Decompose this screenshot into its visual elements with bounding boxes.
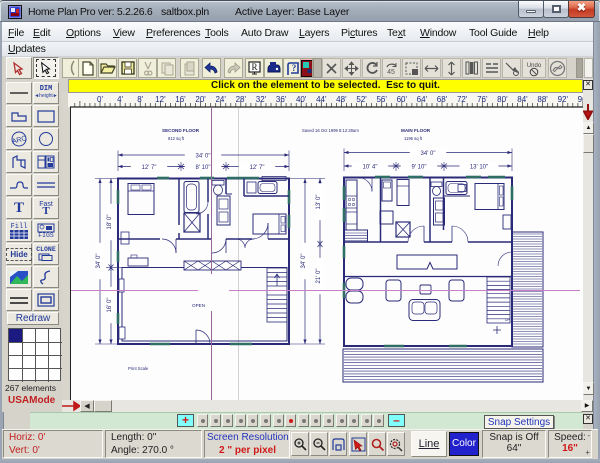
svg-text:12' 7": 12' 7" (250, 165, 265, 171)
svg-text:12': 12' (155, 95, 166, 104)
svg-text:34' 0": 34' 0" (421, 151, 436, 157)
svg-text:MAIN FLOOR: MAIN FLOOR (401, 128, 431, 133)
svg-text:52': 52' (356, 95, 367, 104)
svg-text:44': 44' (316, 95, 327, 104)
svg-text:76': 76' (477, 95, 488, 104)
svg-text:48': 48' (336, 95, 347, 104)
svg-text:68': 68' (437, 95, 448, 104)
svg-text:80': 80' (497, 95, 508, 104)
svg-text:UP: UP (505, 318, 511, 322)
svg-text:0': 0' (97, 95, 103, 104)
svg-text:13' 10": 13' 10" (470, 164, 488, 170)
svg-text:R: R (251, 62, 257, 72)
svg-text:OPEN: OPEN (192, 303, 205, 308)
svg-text:1196 sq ft: 1196 sq ft (404, 136, 423, 141)
svg-text:92': 92' (558, 95, 569, 104)
svg-text:?: ? (291, 63, 296, 73)
svg-text:4': 4' (117, 95, 123, 104)
svg-text:9' 10": 9' 10" (412, 164, 427, 170)
svg-text:21' 0": 21' 0" (316, 269, 322, 284)
svg-text:64': 64' (417, 95, 428, 104)
svg-text:32': 32' (256, 95, 267, 104)
svg-text:28': 28' (236, 95, 247, 104)
svg-text:45: 45 (387, 69, 395, 76)
svg-text:88': 88' (537, 95, 548, 104)
svg-text:84': 84' (517, 95, 528, 104)
svg-text:8': 8' (137, 95, 143, 104)
svg-text:Print Scale: Print Scale (128, 366, 149, 371)
svg-text:34' 0": 34' 0" (301, 254, 307, 269)
svg-text:24': 24' (215, 95, 226, 104)
svg-text:34' 0": 34' 0" (96, 254, 102, 269)
svg-text:72': 72' (457, 95, 468, 104)
svg-text:812 sq ft: 812 sq ft (168, 136, 185, 141)
svg-text:36': 36' (276, 95, 287, 104)
svg-text:ARC: ARC (11, 135, 27, 146)
svg-text:12' 7": 12' 7" (142, 165, 157, 171)
svg-text:8' 10": 8' 10" (196, 165, 211, 171)
svg-text:13' 0": 13' 0" (316, 195, 322, 210)
svg-text:60': 60' (397, 95, 408, 104)
svg-text:SECOND FLOOR: SECOND FLOOR (162, 128, 200, 133)
svg-text:16': 16' (175, 95, 186, 104)
svg-text:34' 0": 34' 0" (196, 153, 211, 159)
svg-text:40': 40' (296, 95, 307, 104)
svg-text:10' 4": 10' 4" (363, 164, 378, 170)
svg-text:Saved 16 Oct 1999 8:12:28am: Saved 16 Oct 1999 8:12:28am (302, 128, 359, 133)
svg-text:20': 20' (195, 95, 206, 104)
svg-text:18' 0": 18' 0" (107, 215, 113, 230)
svg-text:56': 56' (376, 95, 387, 104)
svg-text:16' 0": 16' 0" (107, 298, 113, 313)
